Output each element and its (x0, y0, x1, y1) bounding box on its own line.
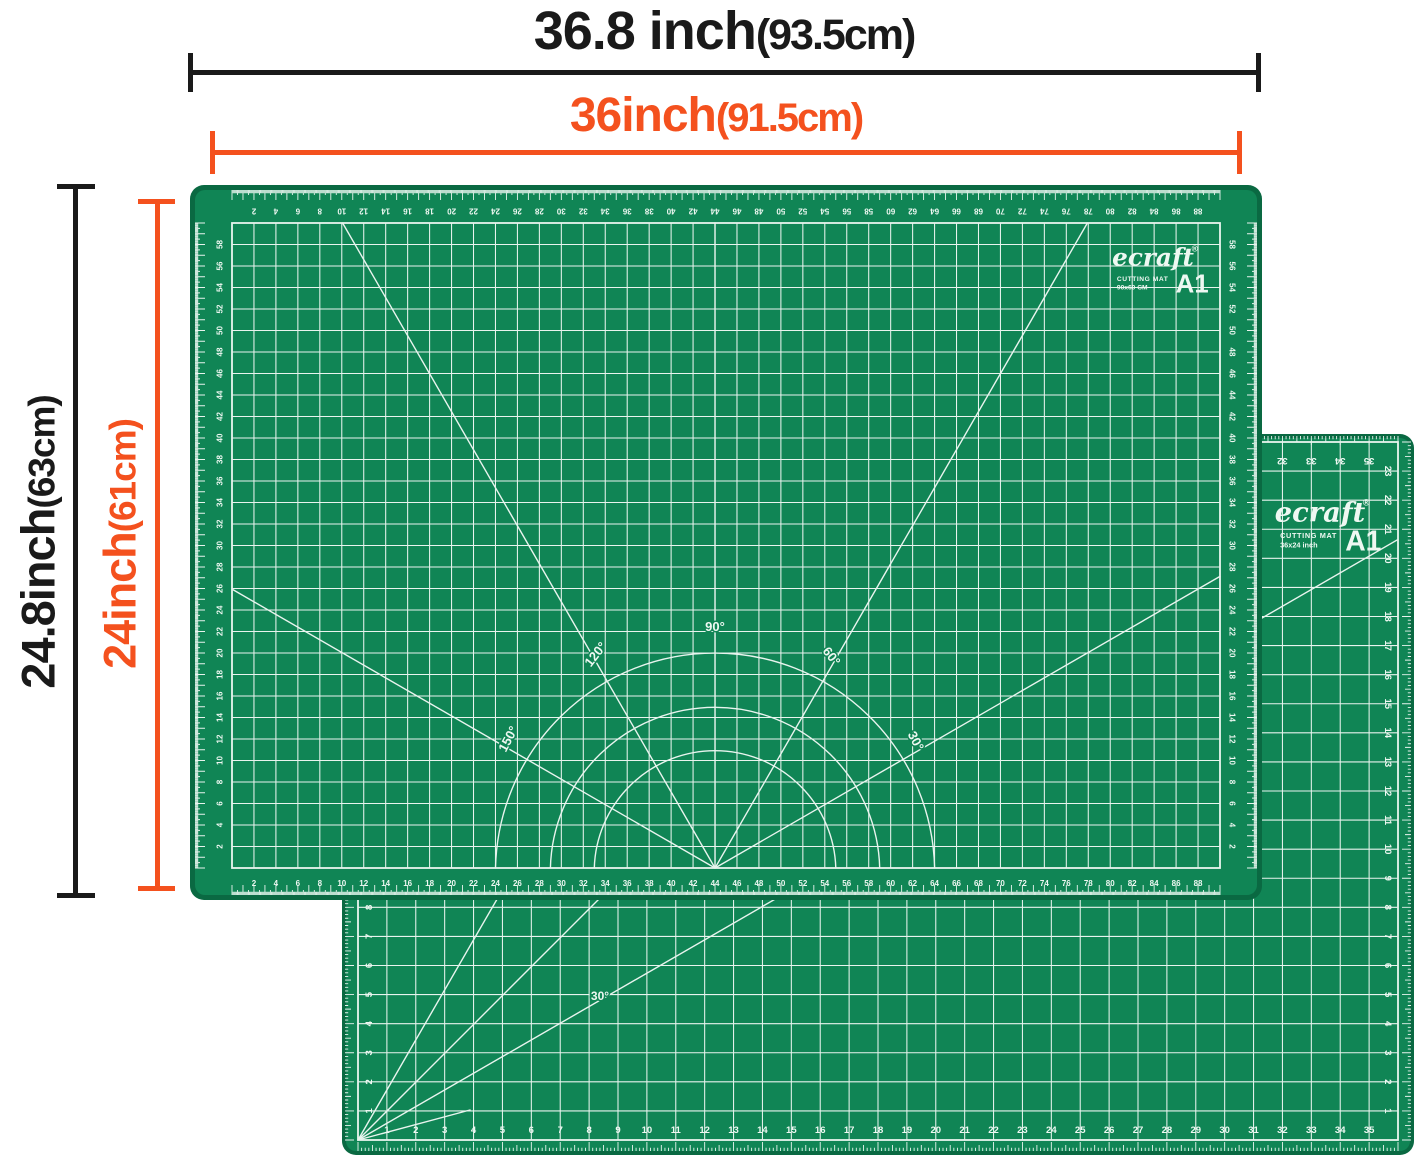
svg-text:68: 68 (974, 879, 983, 888)
svg-text:58: 58 (864, 879, 873, 888)
svg-text:62: 62 (908, 879, 917, 888)
svg-text:26: 26 (216, 584, 225, 593)
svg-text:18: 18 (1228, 670, 1237, 679)
svg-text:58: 58 (864, 207, 873, 216)
svg-text:66: 66 (951, 207, 960, 216)
svg-text:14: 14 (381, 207, 390, 216)
svg-text:12: 12 (699, 1125, 710, 1136)
svg-text:19: 19 (1382, 582, 1393, 593)
svg-text:10: 10 (1382, 844, 1393, 855)
svg-text:12: 12 (1382, 786, 1393, 797)
svg-text:22: 22 (1228, 627, 1237, 636)
svg-text:18: 18 (425, 879, 434, 888)
svg-text:16: 16 (403, 207, 412, 216)
svg-text:13: 13 (1382, 757, 1393, 768)
svg-text:36: 36 (216, 476, 225, 485)
svg-text:10: 10 (642, 1125, 653, 1136)
inner-height-label: 24inch(61cm) (98, 419, 143, 669)
svg-text:12: 12 (1228, 735, 1237, 744)
svg-text:56: 56 (1228, 262, 1237, 271)
svg-text:6: 6 (296, 879, 301, 888)
svg-text:58: 58 (216, 240, 225, 249)
svg-text:44: 44 (711, 879, 720, 888)
svg-text:16: 16 (403, 879, 412, 888)
svg-text:48: 48 (216, 347, 225, 356)
svg-text:72: 72 (1018, 879, 1027, 888)
registered-mark: ® (1192, 243, 1199, 253)
svg-text:3: 3 (1382, 1050, 1393, 1055)
svg-text:64: 64 (930, 879, 939, 888)
mat-grade-label: A1 (1176, 270, 1209, 298)
svg-text:80: 80 (1106, 879, 1115, 888)
dimension-tick (188, 53, 193, 92)
svg-text:10: 10 (337, 207, 346, 216)
mat-size-label: 36x24 inch (1280, 541, 1318, 550)
svg-text:40: 40 (216, 433, 225, 442)
outer-height-label: 24.8inch(63cm) (15, 395, 62, 688)
svg-text:20: 20 (1382, 553, 1393, 564)
svg-text:7: 7 (558, 1125, 563, 1136)
mat-grade-label: A1 (1345, 526, 1381, 558)
svg-text:54: 54 (820, 879, 829, 888)
svg-text:78: 78 (1083, 207, 1092, 216)
svg-text:3: 3 (364, 1050, 375, 1055)
svg-text:10: 10 (216, 756, 225, 765)
svg-text:70: 70 (995, 207, 1004, 216)
svg-text:46: 46 (733, 879, 742, 888)
svg-text:4: 4 (471, 1125, 477, 1136)
svg-text:18: 18 (1382, 611, 1393, 622)
svg-text:8: 8 (317, 207, 322, 216)
svg-text:14: 14 (1382, 728, 1393, 739)
svg-text:60: 60 (886, 207, 895, 216)
svg-text:30: 30 (556, 207, 565, 216)
svg-text:74: 74 (1039, 207, 1048, 216)
svg-text:28: 28 (1228, 563, 1237, 572)
svg-text:7: 7 (1382, 934, 1393, 939)
svg-text:6: 6 (364, 963, 375, 968)
svg-text:5: 5 (1382, 992, 1393, 998)
svg-text:23: 23 (1017, 1125, 1028, 1136)
inner-height-metric: (61cm) (103, 419, 144, 532)
outer-height-dimension-line (73, 186, 78, 897)
svg-text:48: 48 (754, 879, 763, 888)
cutting-mat-front-art: 2244668810101212141416161818202022222424… (190, 185, 1262, 900)
svg-text:22: 22 (468, 207, 477, 216)
svg-text:2: 2 (251, 207, 256, 216)
svg-text:86: 86 (1171, 207, 1180, 216)
svg-text:5: 5 (364, 991, 375, 997)
svg-text:56: 56 (842, 207, 851, 216)
svg-text:28: 28 (535, 879, 544, 888)
svg-text:30: 30 (216, 541, 225, 550)
svg-text:88: 88 (1194, 879, 1203, 888)
svg-text:14: 14 (381, 879, 390, 888)
svg-text:35: 35 (1363, 455, 1374, 466)
svg-text:6: 6 (1228, 801, 1237, 806)
svg-text:50: 50 (216, 326, 225, 335)
svg-text:26: 26 (1104, 1125, 1115, 1136)
svg-text:8: 8 (1382, 905, 1393, 910)
svg-text:34: 34 (601, 879, 610, 888)
svg-text:72: 72 (1017, 207, 1026, 216)
outer-width-label: 36.8 inch(93.5cm) (190, 4, 1258, 58)
svg-text:8: 8 (1228, 780, 1237, 785)
svg-text:1: 1 (1382, 1108, 1393, 1114)
svg-text:25: 25 (1075, 1125, 1086, 1136)
svg-text:27: 27 (1133, 1125, 1144, 1136)
svg-text:10: 10 (337, 879, 346, 888)
svg-text:12: 12 (359, 207, 368, 216)
svg-text:19: 19 (902, 1125, 913, 1136)
mat-surface (195, 190, 1257, 895)
dimension-tick (138, 199, 175, 204)
svg-text:34: 34 (216, 498, 225, 507)
svg-text:2: 2 (413, 1125, 418, 1136)
angle-label: 90° (705, 619, 725, 634)
svg-text:2: 2 (364, 1079, 375, 1084)
svg-text:32: 32 (1228, 520, 1237, 529)
svg-text:54: 54 (1228, 283, 1237, 292)
svg-text:38: 38 (216, 455, 225, 464)
svg-text:4: 4 (364, 1020, 375, 1026)
svg-text:2: 2 (1382, 1079, 1393, 1084)
svg-text:8: 8 (318, 879, 323, 888)
svg-text:12: 12 (216, 734, 225, 743)
svg-text:24: 24 (1046, 1125, 1057, 1136)
svg-text:84: 84 (1150, 879, 1159, 888)
svg-text:30: 30 (1219, 1125, 1230, 1136)
svg-text:31: 31 (1248, 1125, 1259, 1136)
svg-text:56: 56 (842, 879, 851, 888)
svg-text:20: 20 (1228, 649, 1237, 658)
inner-height-dimension-line (155, 201, 160, 889)
svg-text:42: 42 (216, 412, 225, 421)
svg-text:2: 2 (1228, 844, 1237, 849)
brand-name: ecraft (1112, 243, 1194, 272)
svg-text:20: 20 (447, 879, 456, 888)
svg-text:18: 18 (216, 670, 225, 679)
svg-text:52: 52 (1228, 305, 1237, 314)
svg-text:28: 28 (534, 207, 543, 216)
svg-text:30: 30 (1228, 541, 1237, 550)
dimension-tick (138, 886, 175, 891)
outer-width-dimension-line (190, 70, 1258, 75)
svg-text:35: 35 (1364, 1125, 1375, 1136)
outer-height-value: 24.8inch (12, 509, 65, 689)
svg-text:54: 54 (216, 283, 225, 292)
svg-text:24: 24 (1228, 606, 1237, 615)
svg-text:70: 70 (996, 879, 1005, 888)
svg-text:11: 11 (1382, 815, 1393, 826)
svg-text:20: 20 (216, 648, 225, 657)
svg-text:26: 26 (1228, 584, 1237, 593)
svg-text:88: 88 (1193, 207, 1202, 216)
inner-width-label: 36inch(91.5cm) (190, 92, 1242, 140)
svg-text:16: 16 (815, 1125, 826, 1136)
svg-text:74: 74 (1040, 879, 1049, 888)
svg-text:16: 16 (216, 691, 225, 700)
svg-text:17: 17 (1382, 640, 1393, 651)
svg-text:18: 18 (425, 207, 434, 216)
svg-text:4: 4 (273, 207, 278, 216)
svg-text:1: 1 (384, 1125, 390, 1136)
svg-text:50: 50 (776, 879, 785, 888)
dimension-tick (57, 893, 95, 898)
svg-text:52: 52 (216, 304, 225, 313)
svg-text:58: 58 (1228, 240, 1237, 249)
svg-text:34: 34 (1334, 455, 1345, 466)
dimension-tick (210, 131, 215, 174)
svg-text:64: 64 (930, 207, 939, 216)
svg-text:4: 4 (216, 822, 225, 827)
svg-text:76: 76 (1061, 207, 1070, 216)
svg-text:1: 1 (364, 1108, 375, 1114)
svg-text:34: 34 (600, 207, 609, 216)
svg-text:21: 21 (959, 1125, 970, 1136)
angle-label: 30° (591, 989, 609, 1003)
dimension-tick (1237, 131, 1242, 174)
svg-text:4: 4 (1228, 823, 1237, 828)
mat-type-label: CUTTING MAT (1117, 276, 1169, 283)
svg-text:20: 20 (930, 1125, 941, 1136)
svg-text:76: 76 (1062, 879, 1071, 888)
svg-text:13: 13 (728, 1125, 739, 1136)
svg-text:8: 8 (586, 1125, 591, 1136)
svg-text:7: 7 (364, 934, 375, 939)
cutting-mat-product-diagram: 1122334455667788991010111112121313141415… (0, 0, 1421, 1160)
svg-text:34: 34 (1335, 1125, 1346, 1136)
svg-text:44: 44 (216, 390, 225, 399)
svg-text:11: 11 (671, 1125, 682, 1136)
svg-text:82: 82 (1128, 879, 1137, 888)
dimension-tick (1256, 53, 1261, 92)
svg-text:22: 22 (988, 1125, 999, 1136)
svg-text:44: 44 (710, 207, 719, 216)
svg-text:68: 68 (974, 207, 983, 216)
svg-text:14: 14 (1228, 713, 1237, 722)
svg-text:6: 6 (1382, 963, 1393, 968)
svg-text:42: 42 (1228, 412, 1237, 421)
svg-text:52: 52 (798, 207, 807, 216)
svg-text:32: 32 (1277, 455, 1288, 466)
svg-text:42: 42 (688, 207, 697, 216)
svg-text:2: 2 (216, 844, 225, 849)
svg-text:15: 15 (786, 1125, 797, 1136)
svg-text:3: 3 (442, 1125, 447, 1136)
svg-text:16: 16 (1228, 692, 1237, 701)
svg-text:33: 33 (1306, 455, 1317, 466)
svg-text:54: 54 (820, 207, 829, 216)
svg-text:40: 40 (667, 879, 676, 888)
svg-text:38: 38 (644, 207, 653, 216)
outer-height-metric: (63cm) (22, 395, 63, 508)
svg-text:60: 60 (886, 879, 895, 888)
svg-text:84: 84 (1149, 207, 1158, 216)
svg-text:26: 26 (513, 879, 522, 888)
svg-text:18: 18 (873, 1125, 884, 1136)
inner-width-value: 36inch (570, 89, 716, 142)
svg-text:22: 22 (1382, 495, 1393, 506)
svg-text:24: 24 (491, 207, 500, 216)
svg-text:20: 20 (447, 207, 456, 216)
svg-text:8: 8 (216, 779, 225, 784)
svg-text:8: 8 (364, 905, 375, 910)
svg-text:50: 50 (1228, 326, 1237, 335)
svg-text:4: 4 (1382, 1021, 1393, 1027)
svg-text:28: 28 (216, 562, 225, 571)
svg-text:46: 46 (1228, 369, 1237, 378)
svg-text:52: 52 (798, 879, 807, 888)
cutting-mat-front: 2244668810101212141416161818202022222424… (190, 185, 1262, 900)
svg-text:17: 17 (844, 1125, 855, 1136)
svg-text:14: 14 (216, 713, 225, 722)
mat-type-label: CUTTING MAT (1280, 531, 1337, 540)
svg-text:9: 9 (1382, 876, 1393, 881)
brand-name: ecraft (1275, 496, 1366, 528)
svg-text:82: 82 (1127, 207, 1136, 216)
svg-text:26: 26 (512, 207, 521, 216)
svg-text:48: 48 (1228, 348, 1237, 357)
inner-height-value: 24inch (95, 532, 146, 669)
svg-text:36: 36 (622, 207, 631, 216)
svg-text:80: 80 (1105, 207, 1114, 216)
svg-text:23: 23 (1382, 466, 1393, 477)
svg-text:78: 78 (1084, 879, 1093, 888)
svg-text:22: 22 (469, 879, 478, 888)
svg-text:50: 50 (776, 207, 785, 216)
svg-text:44: 44 (1228, 391, 1237, 400)
svg-text:86: 86 (1172, 879, 1181, 888)
mat-size-label: 90x60 CM (1117, 284, 1148, 291)
outer-width-metric: (93.5cm) (756, 11, 914, 59)
svg-text:46: 46 (216, 369, 225, 378)
svg-text:4: 4 (274, 879, 279, 888)
svg-text:38: 38 (645, 879, 654, 888)
svg-text:32: 32 (579, 879, 588, 888)
svg-text:24: 24 (216, 605, 225, 614)
svg-text:30: 30 (557, 879, 566, 888)
svg-text:36: 36 (623, 879, 632, 888)
svg-text:5: 5 (500, 1125, 506, 1136)
svg-text:24: 24 (491, 879, 500, 888)
svg-text:9: 9 (615, 1125, 620, 1136)
svg-text:40: 40 (666, 207, 675, 216)
svg-text:14: 14 (757, 1125, 768, 1136)
svg-text:16: 16 (1382, 669, 1393, 680)
svg-text:66: 66 (952, 879, 961, 888)
svg-text:6: 6 (216, 801, 225, 806)
svg-text:32: 32 (216, 519, 225, 528)
inner-width-metric: (91.5cm) (716, 96, 862, 140)
svg-text:36: 36 (1228, 477, 1237, 486)
svg-text:32: 32 (1277, 1125, 1288, 1136)
dimension-tick (57, 184, 95, 189)
registered-mark: ® (1363, 498, 1370, 509)
svg-text:10: 10 (1228, 756, 1237, 765)
svg-text:42: 42 (689, 879, 698, 888)
svg-text:2: 2 (252, 879, 257, 888)
svg-text:48: 48 (754, 207, 763, 216)
svg-text:34: 34 (1228, 498, 1237, 507)
svg-text:32: 32 (578, 207, 587, 216)
svg-text:40: 40 (1228, 434, 1237, 443)
inner-width-dimension-line (212, 150, 1240, 155)
svg-text:22: 22 (216, 627, 225, 636)
svg-text:12: 12 (359, 879, 368, 888)
svg-text:6: 6 (529, 1125, 534, 1136)
outer-width-value: 36.8 inch (534, 1, 756, 61)
svg-text:15: 15 (1382, 699, 1393, 710)
svg-text:21: 21 (1382, 524, 1393, 535)
svg-text:56: 56 (216, 261, 225, 270)
svg-text:62: 62 (908, 207, 917, 216)
svg-text:38: 38 (1228, 455, 1237, 464)
svg-text:46: 46 (732, 207, 741, 216)
svg-text:29: 29 (1190, 1125, 1201, 1136)
svg-text:33: 33 (1306, 1125, 1317, 1136)
svg-text:28: 28 (1162, 1125, 1173, 1136)
svg-text:6: 6 (295, 207, 300, 216)
